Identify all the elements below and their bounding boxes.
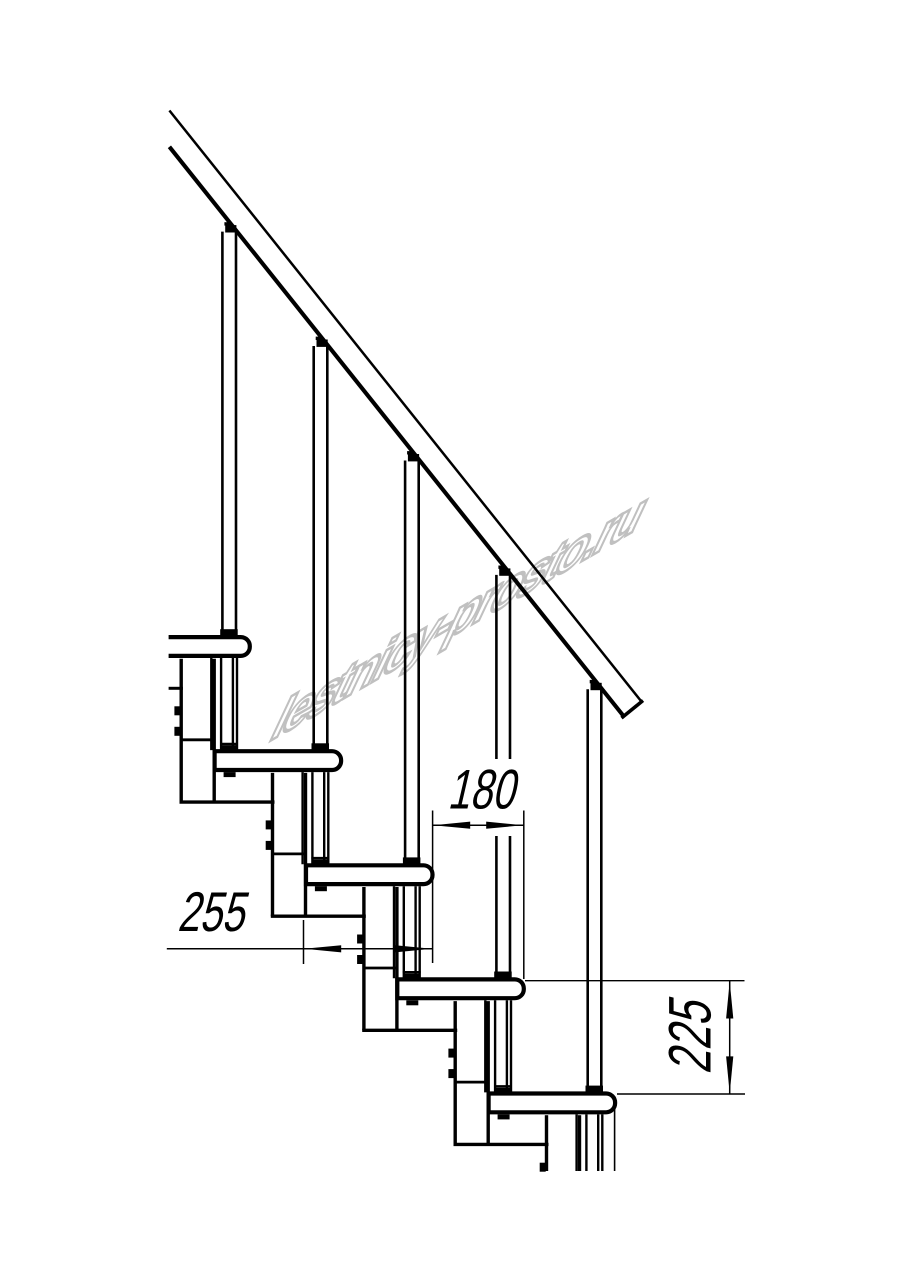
svg-text:225: 225 [657, 990, 724, 1077]
